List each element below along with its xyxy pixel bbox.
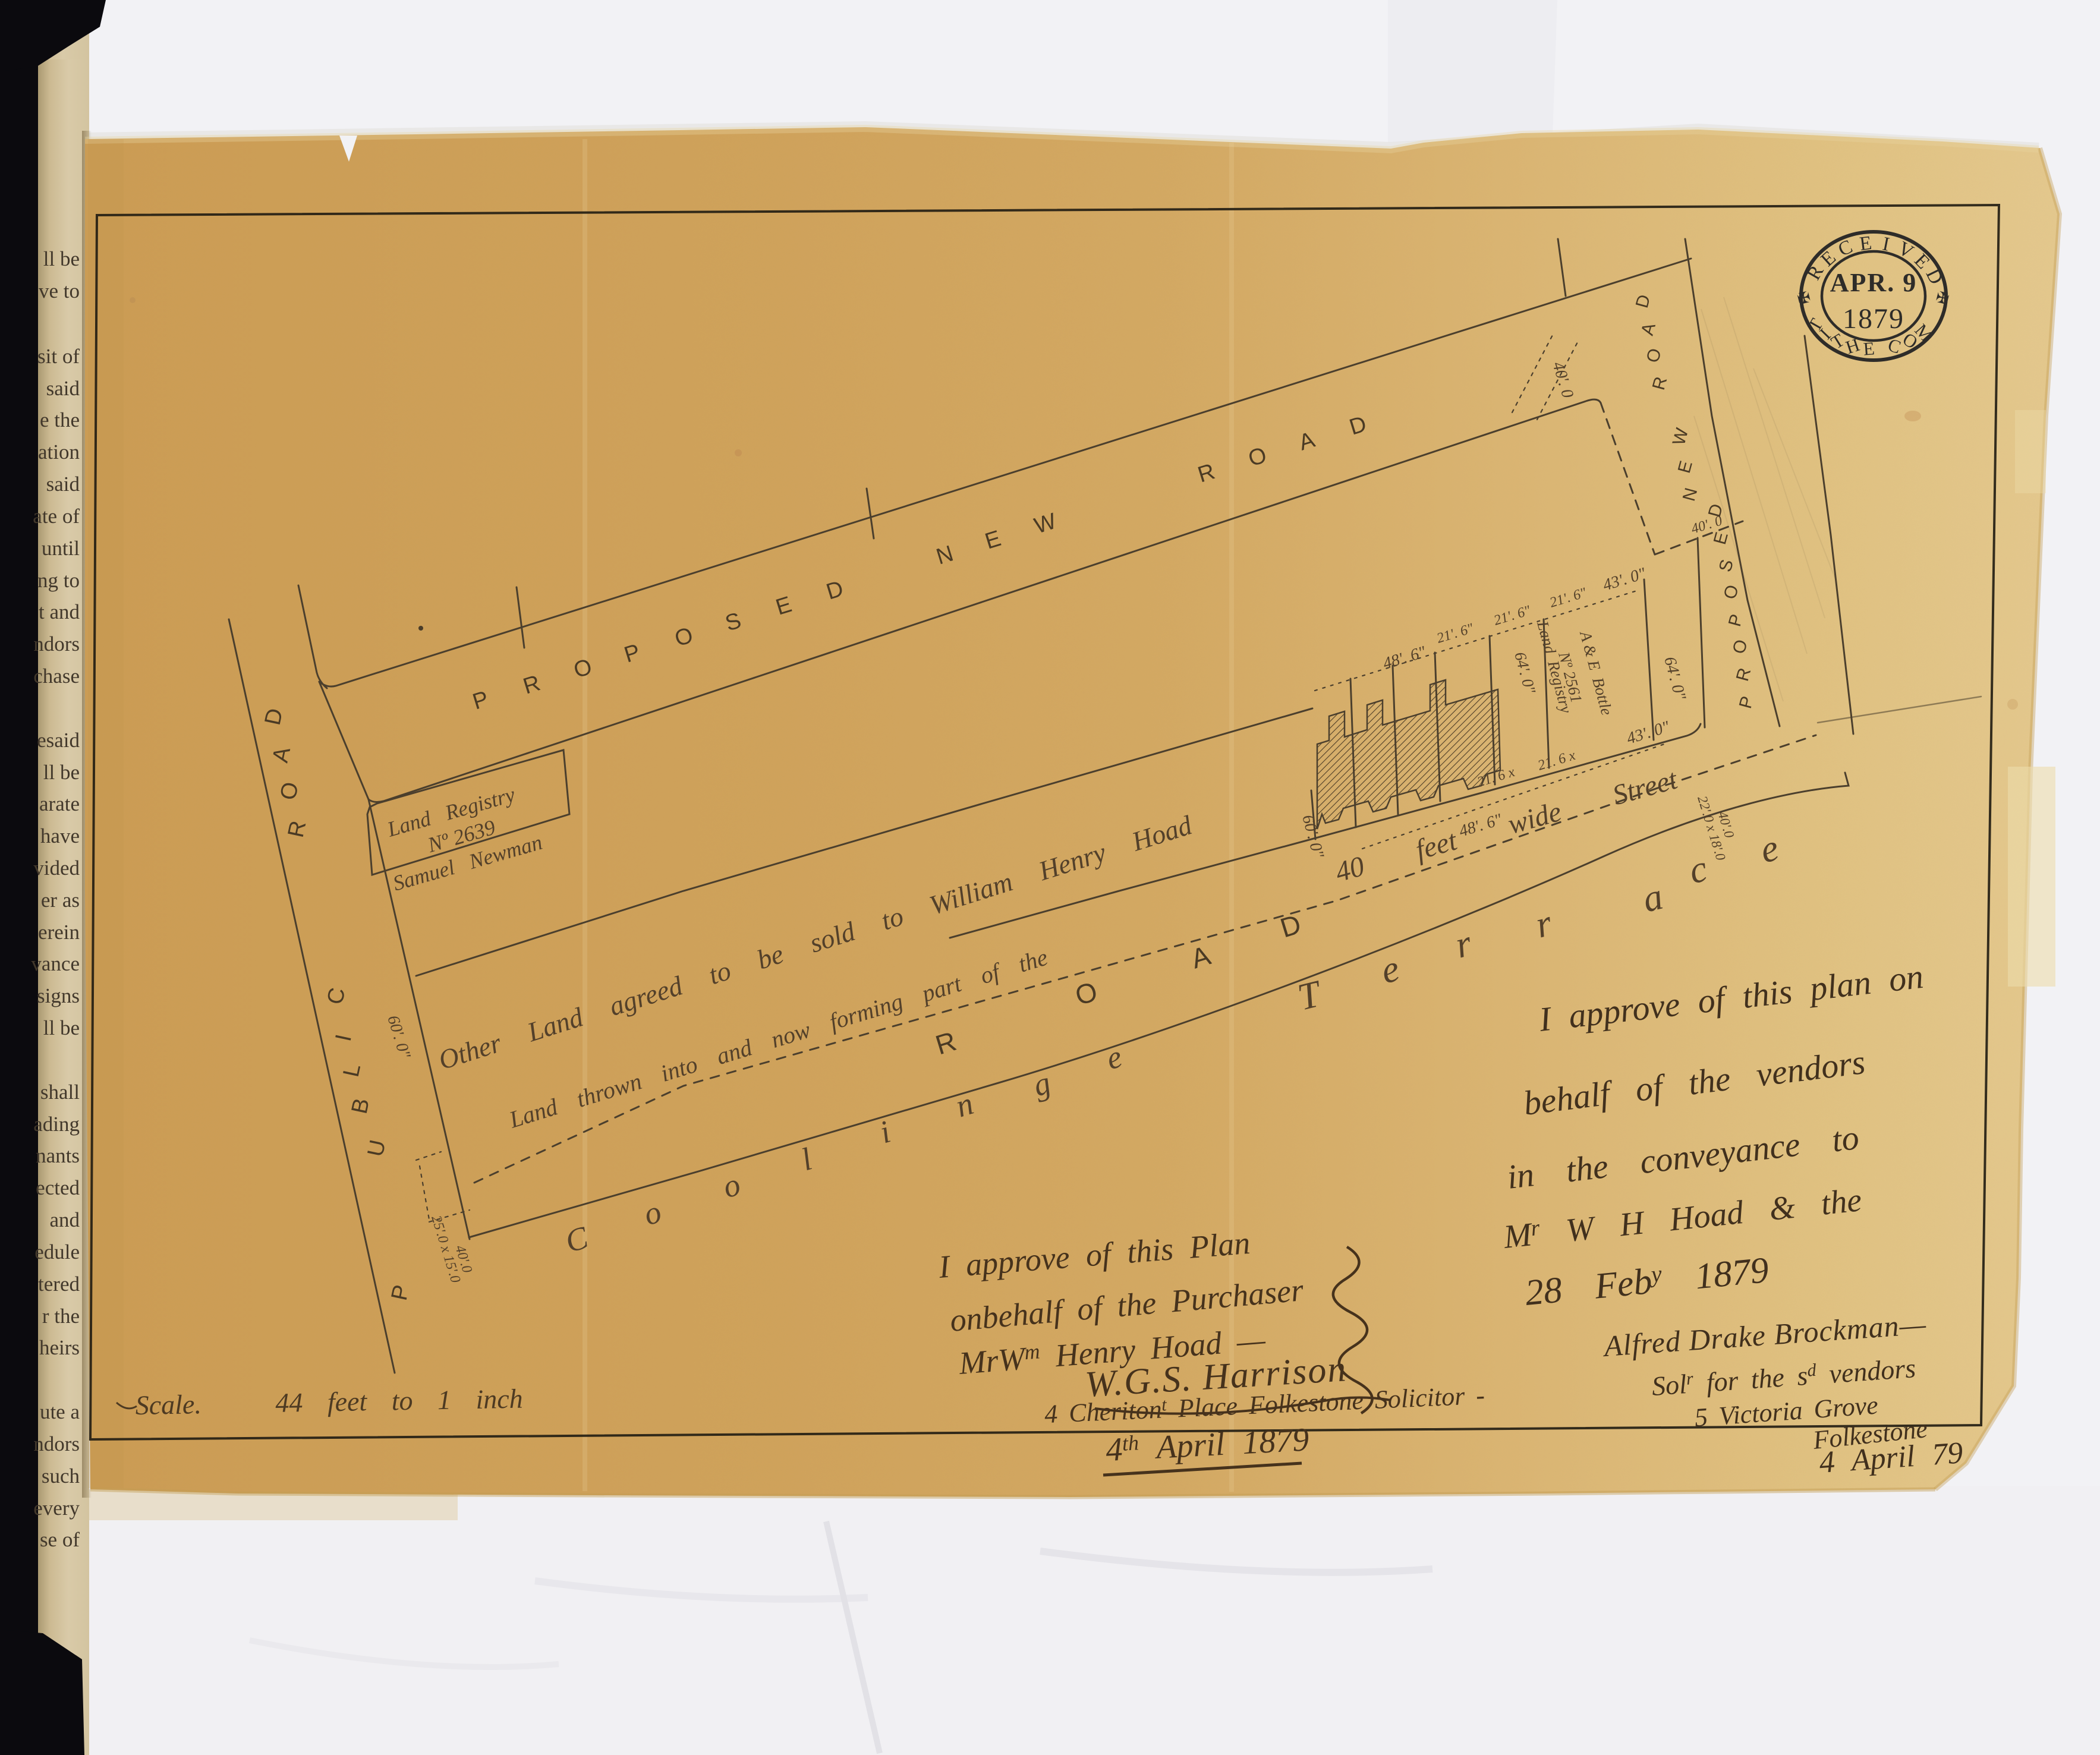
svg-text:ndors: ndors <box>33 1432 80 1455</box>
svg-text:e the: e the <box>40 408 80 431</box>
svg-text:ected: ected <box>36 1176 80 1199</box>
svg-text:signs: signs <box>37 984 80 1007</box>
svg-text:said: said <box>46 472 80 496</box>
svg-text:until: until <box>42 537 80 560</box>
svg-text:se of: se of <box>40 1528 80 1551</box>
svg-text:esaid: esaid <box>37 729 80 752</box>
svg-text:ve to: ve to <box>39 279 80 303</box>
svg-text:ll be: ll be <box>43 761 80 784</box>
svg-text:erein: erein <box>38 921 80 944</box>
svg-text:ate of: ate of <box>33 505 80 528</box>
svg-text:said: said <box>46 377 80 400</box>
svg-text:shall: shall <box>40 1080 80 1104</box>
svg-text:ading: ading <box>33 1113 80 1136</box>
svg-text:heirs: heirs <box>39 1336 80 1359</box>
svg-text:ndors: ndors <box>33 632 80 656</box>
svg-text:ute a: ute a <box>40 1400 80 1423</box>
svg-text:ation: ation <box>38 440 80 464</box>
svg-text:vance: vance <box>31 952 80 975</box>
svg-text:1879: 1879 <box>1843 303 1904 335</box>
svg-text:ll be: ll be <box>43 1016 80 1039</box>
svg-text:er as: er as <box>41 888 80 912</box>
svg-text:E: E <box>1863 338 1875 359</box>
svg-text:tered: tered <box>38 1272 80 1296</box>
svg-text:r the: r the <box>42 1305 80 1328</box>
svg-text:nants: nants <box>36 1144 80 1167</box>
svg-text:ll be: ll be <box>43 247 80 270</box>
svg-text:edule: edule <box>34 1240 80 1264</box>
svg-text:chase: chase <box>33 664 80 688</box>
svg-text:sit of: sit of <box>37 345 80 368</box>
svg-text:and: and <box>49 1208 80 1231</box>
svg-text:ng to: ng to <box>37 569 80 592</box>
svg-text:vided: vided <box>33 856 80 880</box>
svg-text:every: every <box>33 1496 80 1520</box>
svg-text:have: have <box>40 824 80 847</box>
svg-text:such: such <box>42 1464 80 1488</box>
svg-text:t and: t and <box>39 600 80 623</box>
svg-text:APR. 9: APR. 9 <box>1830 268 1917 297</box>
svg-text:arate: arate <box>39 792 80 815</box>
